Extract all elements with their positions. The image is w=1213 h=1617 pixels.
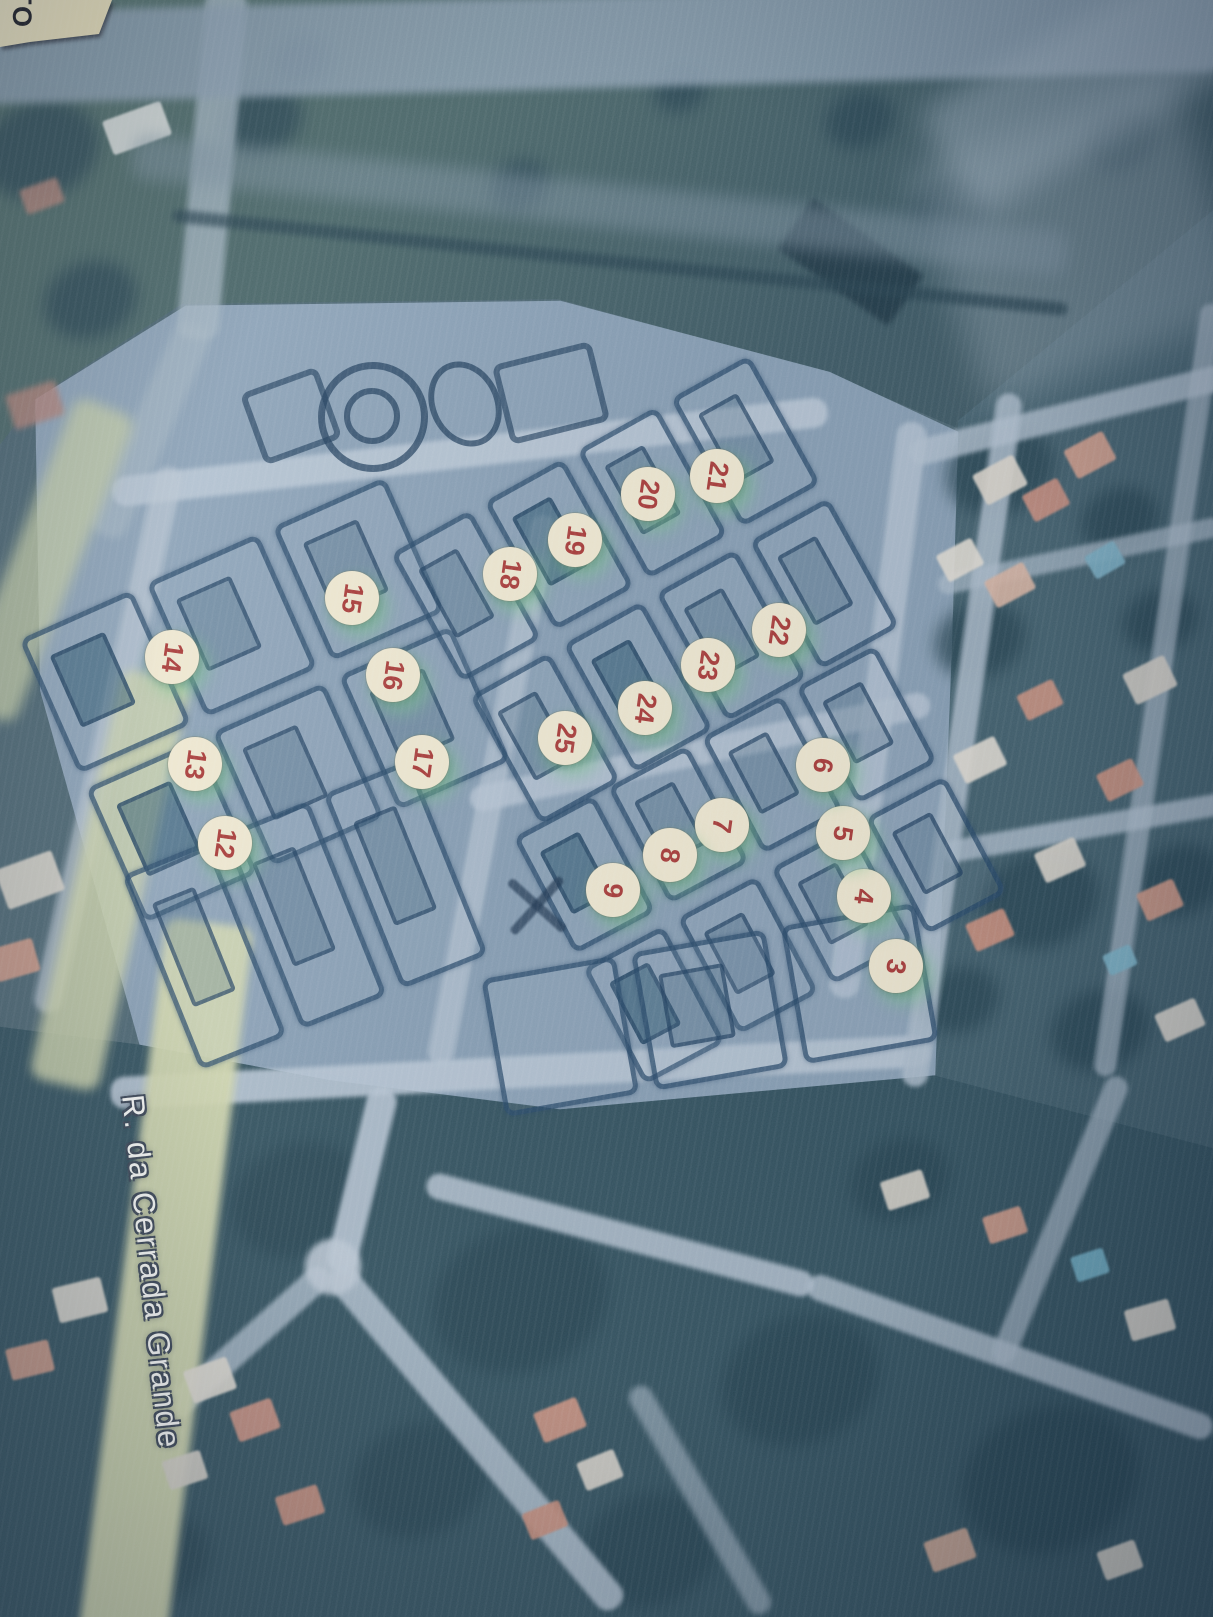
aerial-photo: R. da Cerrada Grande 3456789121314151617… bbox=[0, 0, 1213, 1617]
vignette-overlay bbox=[0, 0, 1213, 1617]
